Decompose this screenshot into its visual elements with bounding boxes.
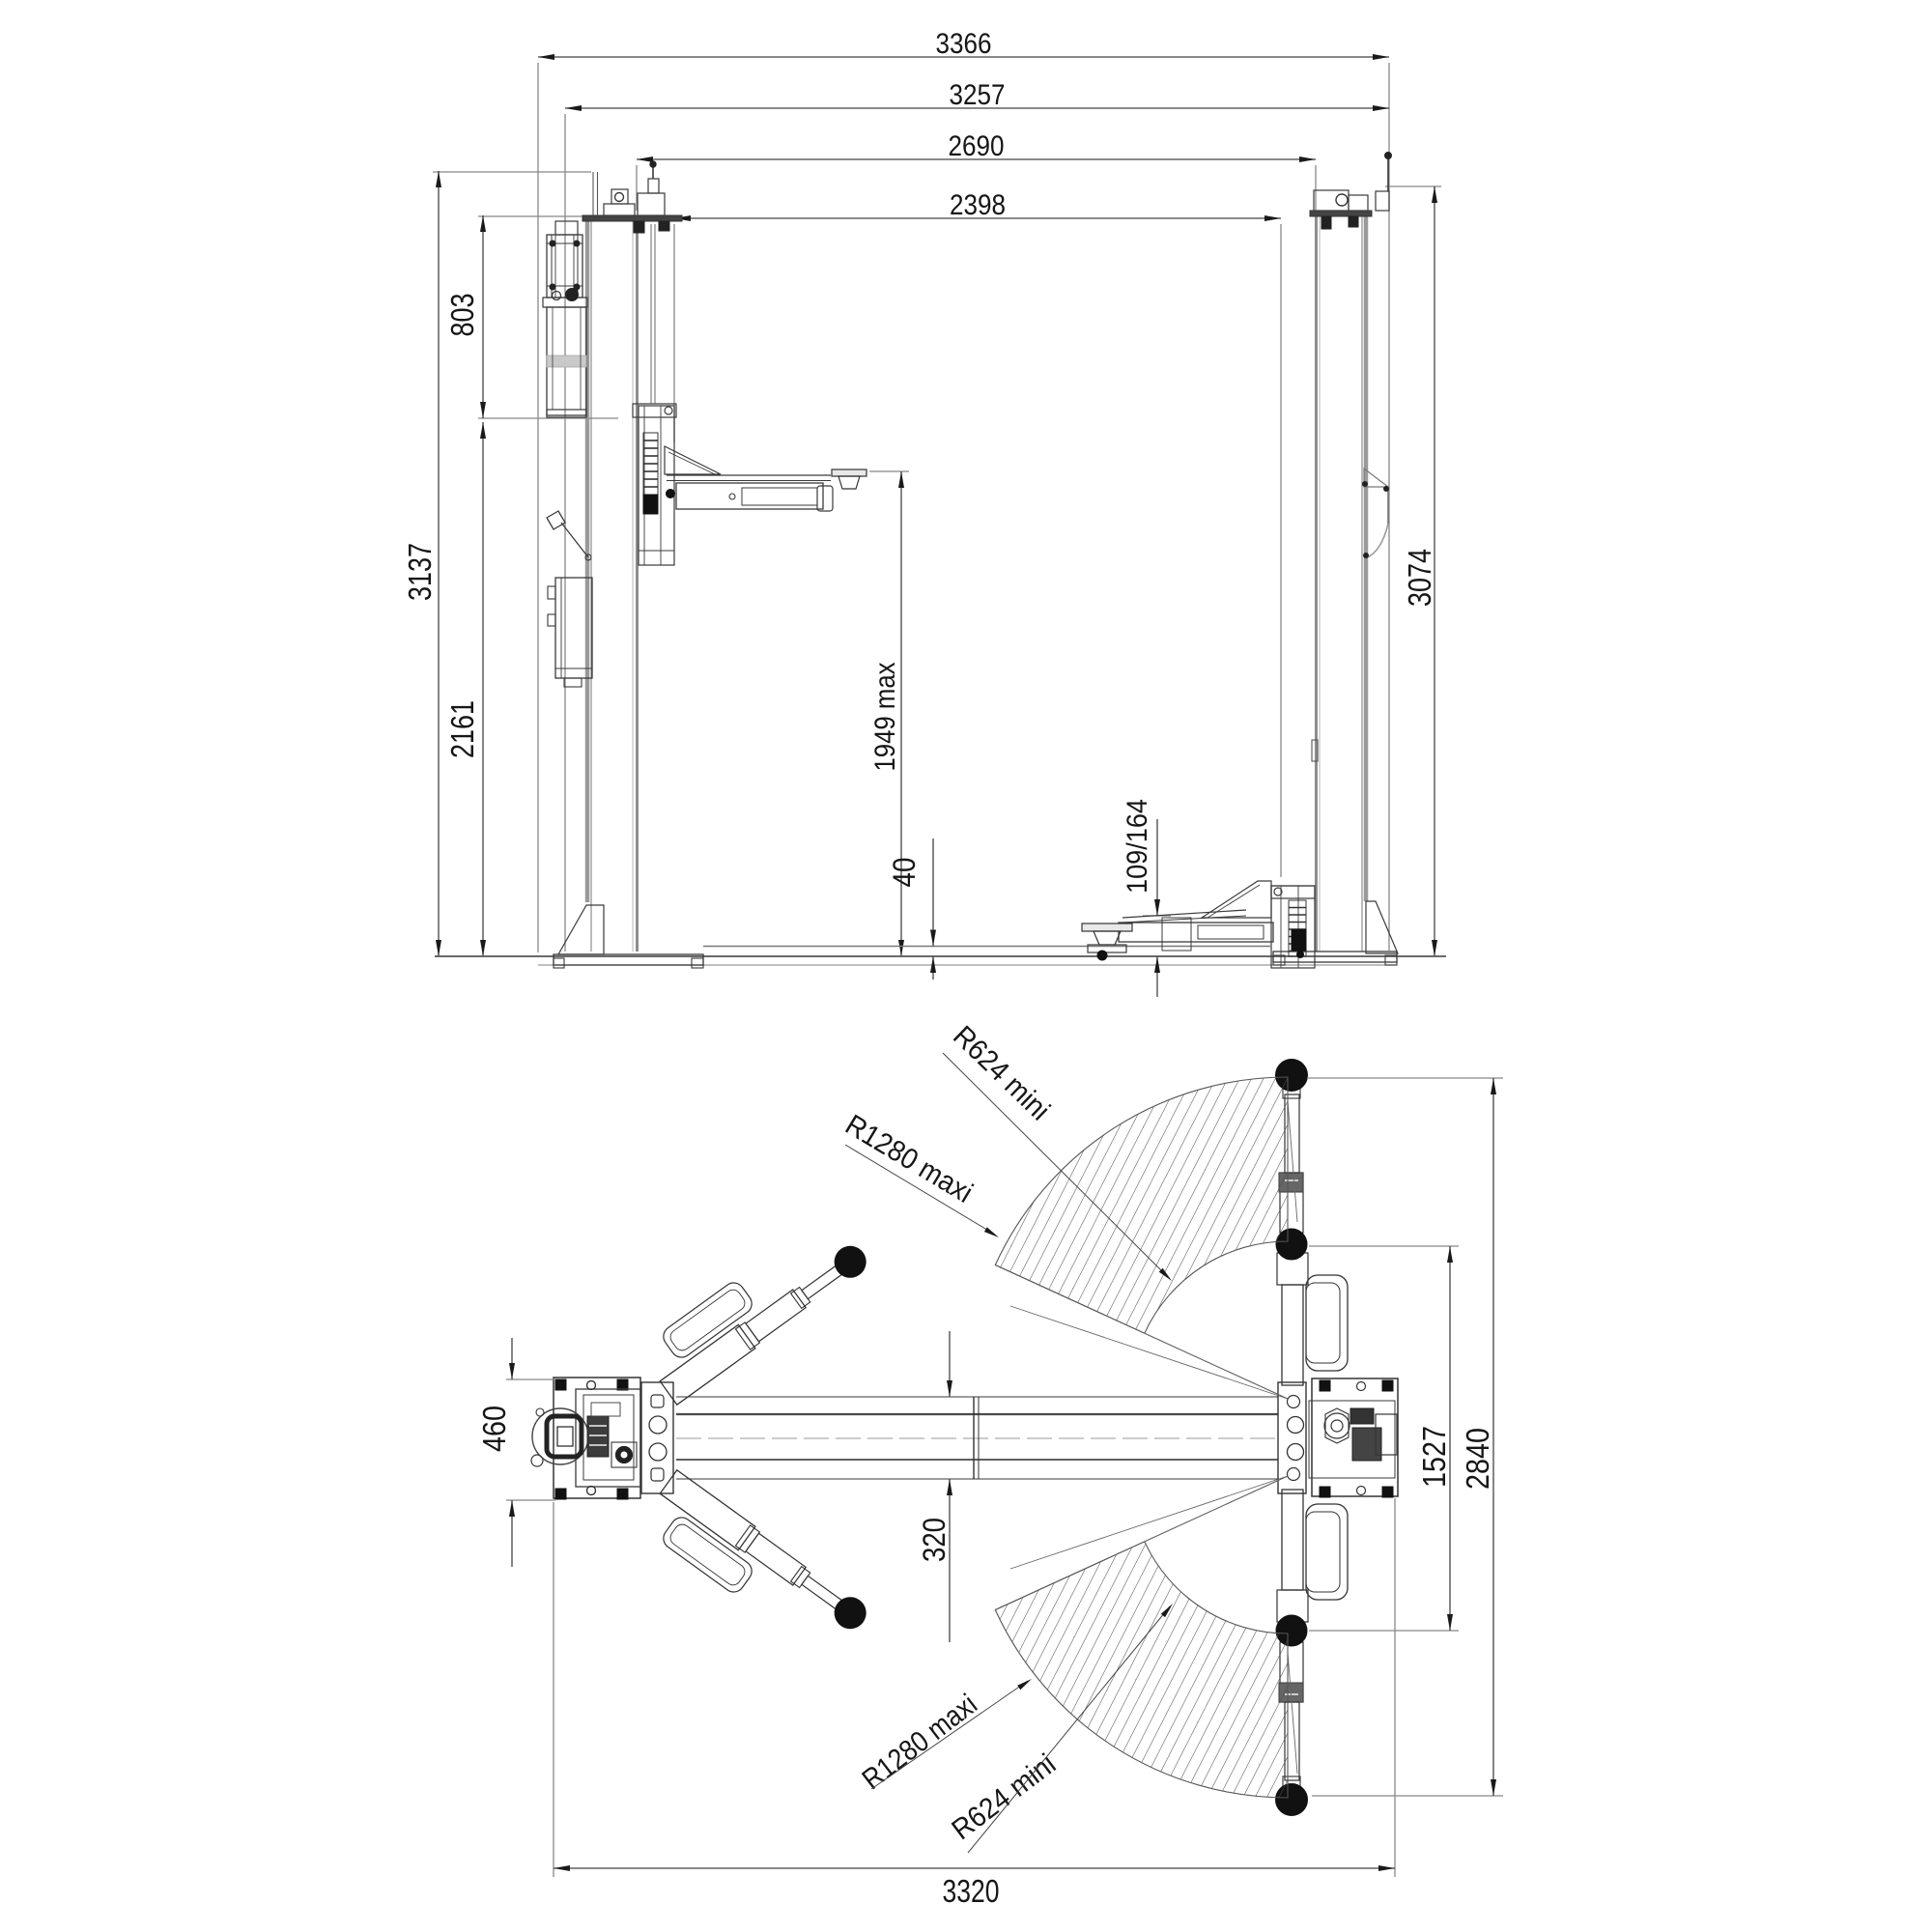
svg-text:3320: 3320 [943, 1873, 1000, 1909]
svg-text:3137: 3137 [402, 543, 438, 601]
svg-text:2398: 2398 [950, 189, 1006, 221]
svg-text:1527: 1527 [1416, 1426, 1452, 1488]
svg-text:3366: 3366 [936, 28, 992, 60]
svg-text:2690: 2690 [949, 130, 1005, 162]
svg-text:2840: 2840 [1460, 1428, 1495, 1490]
svg-text:320: 320 [917, 1518, 952, 1562]
svg-text:3074: 3074 [1402, 549, 1437, 607]
svg-text:460: 460 [476, 1406, 512, 1452]
svg-text:40: 40 [887, 858, 922, 888]
svg-text:1949 max: 1949 max [869, 663, 901, 772]
svg-text:2161: 2161 [444, 700, 480, 758]
svg-text:3257: 3257 [950, 79, 1006, 111]
svg-text:109/164: 109/164 [1122, 799, 1153, 894]
svg-text:803: 803 [444, 294, 480, 337]
